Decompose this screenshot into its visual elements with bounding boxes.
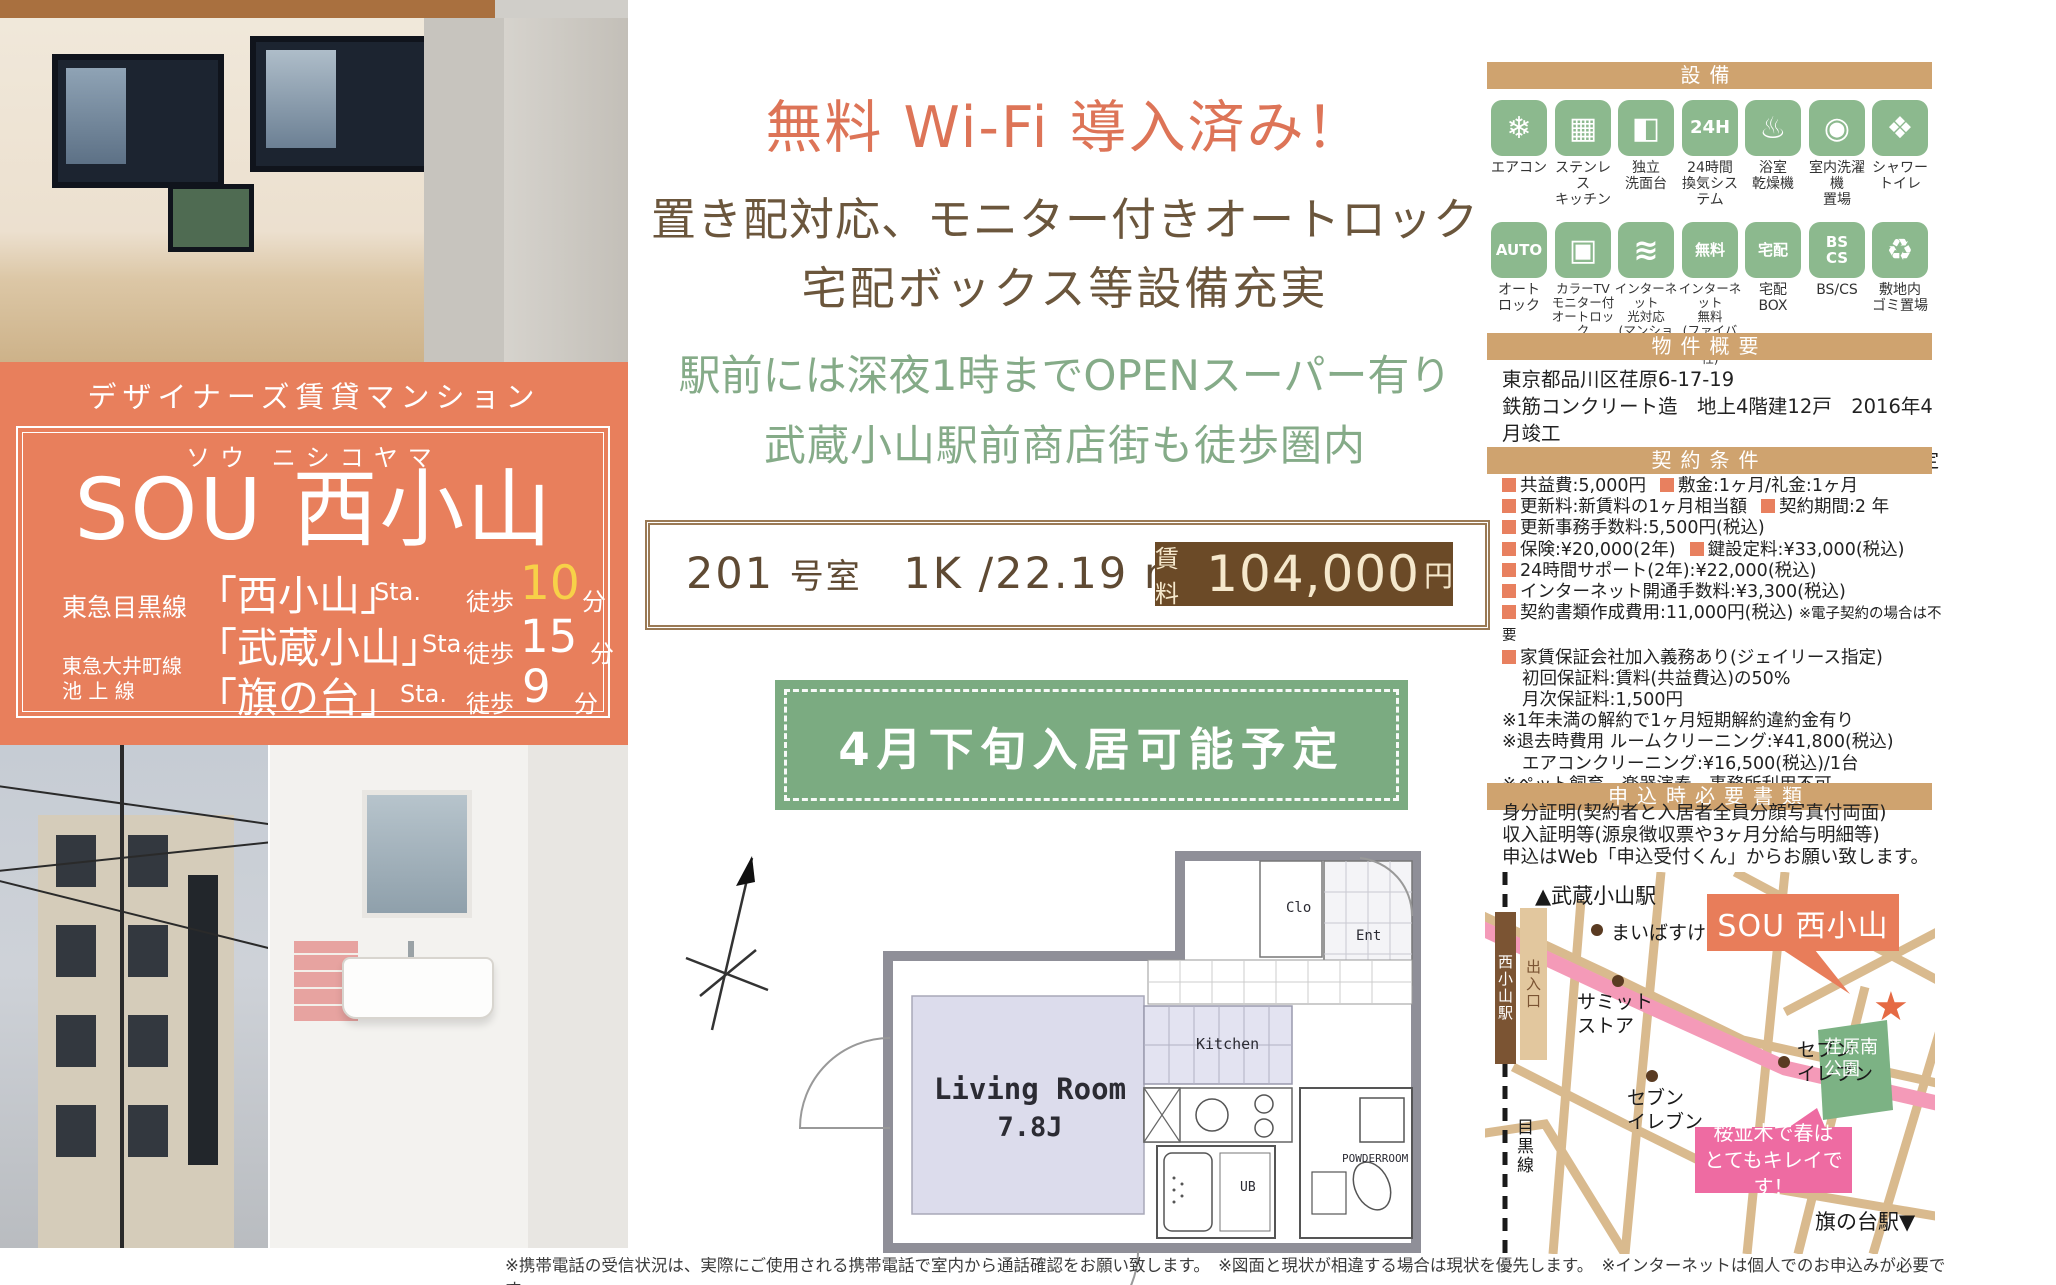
summit-store-label: サミット ストア	[1577, 990, 1653, 1038]
access-station-3: 「旗の台」	[196, 664, 401, 724]
closet-label: Clo	[1286, 900, 1311, 916]
terms-row: 月次保証料:1,500円	[1502, 690, 1942, 711]
property-name-panel: デザイナーズ賃貸マンション ソウ ニシコヤマ SOU 西小山 東急目黒線 「西小…	[0, 362, 628, 745]
internet-fiber-icon: ≋	[1618, 222, 1674, 278]
terms-row: 契約書類作成費用:11,000円(税込) ※電子契約の場合は不要	[1502, 603, 1942, 647]
property-map-callout: SOU 西小山	[1707, 894, 1899, 951]
compass-icon	[686, 858, 768, 1030]
meguro-line-label: 目黒線	[1511, 1118, 1536, 1175]
access-walk-3: 徒歩	[466, 684, 514, 719]
bullet-icon	[1660, 478, 1674, 492]
bullet-icon	[1502, 520, 1516, 534]
access-line-1: 東急目黒線	[62, 588, 187, 624]
headline-supermarket: 駅前には深夜1時までOPENスーパー有り	[620, 342, 1510, 403]
documents-web: 申込はWeb「申込受付くん」からお願い致します。	[1502, 847, 1942, 869]
equipment-item-aircon: ❄ エアコン	[1487, 100, 1551, 176]
access-minutes-2: 15	[520, 610, 577, 663]
hatanodai-station-label: 旗の台駅▼	[1815, 1206, 1915, 1236]
photo-room-interior	[0, 18, 628, 362]
powder-room-label: POWDERROOM	[1342, 1152, 1408, 1165]
concrete-wall	[504, 18, 628, 362]
bullet-icon	[1502, 650, 1516, 664]
equipment-item-indoor-laundry: ◉ 室内洗濯機 置場	[1805, 100, 1869, 208]
compass-north-arrow	[736, 856, 755, 886]
living-room-label: Living Room	[930, 1072, 1130, 1106]
access-unit-1: 分	[582, 582, 606, 617]
move-in-banner: 4月下旬入居可能予定	[775, 680, 1408, 810]
concrete-pillar	[424, 18, 504, 362]
sakura-note: 桜並木で春は とてもキレイです！	[1695, 1127, 1852, 1193]
powder-sink	[1360, 1098, 1404, 1142]
bath-dryer-icon: ♨	[1745, 100, 1801, 156]
property-name: SOU 西小山	[0, 456, 628, 566]
rent-value: 104,000	[1206, 545, 1420, 603]
overview-address: 東京都品川区荏原6-17-19	[1502, 366, 1942, 393]
access-map: 西小山駅 出入口 ▲武蔵小山駅 まいばすけっと サミット ストア セブン イレブ…	[1485, 872, 1935, 1254]
door-arc-left	[800, 1038, 890, 1128]
equipment-item-ventilation: 24H 24時間 換気システム	[1678, 100, 1742, 208]
rent-box: 賃料 104,000 円	[1155, 542, 1453, 606]
access-line-3: 東急大井町線 池 上 線	[62, 654, 182, 704]
station-exit-bar: 出入口	[1520, 908, 1547, 1060]
headline-free-wifi: 無料 Wi-Fi 導入済み！	[640, 82, 1490, 164]
documents-id: 身分証明(契約者と入居者全員分顔写真付両面)	[1502, 803, 1942, 825]
nishikoyama-station-bar: 西小山駅	[1495, 912, 1516, 1064]
musashikoyama-station-label: ▲武蔵小山駅	[1535, 880, 1656, 910]
ub-label: UB	[1240, 1180, 1256, 1195]
autolock-key-icon: AUTO	[1491, 222, 1547, 278]
living-size-label: 7.8J	[930, 1112, 1130, 1143]
access-sta-2: Sta.	[422, 630, 469, 658]
access-minutes-1: 10	[520, 556, 580, 611]
power-pole	[120, 745, 124, 1248]
terms-row: 共益費:5,000円敷金:1ヶ月/礼金:1ヶ月	[1502, 476, 1942, 497]
room-number: 201	[686, 549, 774, 599]
headline-shopping-street: 武蔵小山駅前商店街も徒歩圏内	[620, 412, 1510, 473]
access-walk-1: 徒歩	[466, 582, 514, 617]
mirror-shape	[362, 790, 472, 918]
property-badge: デザイナーズ賃貸マンション	[0, 374, 628, 416]
documents-income: 収入証明等(源泉徴収票や3ヶ月分給与明細等)	[1502, 825, 1942, 847]
bullet-icon	[1502, 499, 1516, 513]
washing-machine-icon: ◉	[1809, 100, 1865, 156]
bath-wall	[528, 745, 628, 1248]
garbage-area-icon: ♻	[1872, 222, 1928, 278]
bullet-icon	[1690, 542, 1704, 556]
top-photo-edge	[495, 0, 628, 18]
window-shape	[168, 184, 254, 252]
access-sta-3: Sta.	[400, 680, 447, 708]
washbasin-shape	[342, 957, 494, 1019]
rental-flyer: デザイナーズ賃貸マンション ソウ ニシコヤマ SOU 西小山 東急目黒線 「西小…	[0, 0, 2056, 1285]
equipment-item-bath-dryer: ♨ 浴室 乾燥機	[1741, 100, 1805, 192]
terms-text: 共益費:5,000円敷金:1ヶ月/礼金:1ヶ月 更新料:新賃料の1ヶ月相当額契約…	[1502, 476, 1942, 796]
move-in-text: 4月下旬入居可能予定	[775, 680, 1408, 810]
headline-feature-2: 宅配ボックス等設備充実	[620, 252, 1510, 317]
bullet-icon	[1502, 478, 1516, 492]
room-number-suffix: 号室	[790, 557, 862, 597]
room-info-frame: 201 号室 1K /22.19 m² 賃料 104,000 円	[645, 520, 1490, 630]
window-shape	[52, 54, 224, 188]
stainless-kitchen-icon: ▦	[1555, 100, 1611, 156]
access-walk-2: 徒歩	[466, 634, 514, 669]
bullet-icon	[1761, 499, 1775, 513]
washstand-icon: ◧	[1618, 100, 1674, 156]
overview-structure: 鉄筋コンクリート造 地上4階建12戸 2016年4月竣工	[1502, 393, 1942, 447]
access-minutes-3: 9	[522, 660, 551, 713]
equipment-item-kitchen: ▦ ステンレス キッチン	[1551, 100, 1615, 208]
bs-cs-icon: BS CS	[1809, 222, 1865, 278]
equipment-item-washstand: ◧ 独立 洗面台	[1614, 100, 1678, 192]
property-star-icon: ★	[1873, 984, 1909, 1030]
seven-eleven-label-2: セブン イレブン	[1627, 1086, 1703, 1134]
access-unit-3: 分	[574, 684, 598, 719]
nishikoyama-station-label: 西小山駅	[1495, 954, 1516, 1022]
terms-row: 初回保証料:賃料(共益費込)の50%	[1502, 669, 1942, 690]
entry-label: Ent	[1356, 928, 1381, 944]
footer-disclaimer: ※携帯電話の受信状況は、実際にご使用される携帯電話で室内から通話確認をお願い致し…	[505, 1252, 1955, 1285]
equipment-item-garbage: ♻ 敷地内 ゴミ置場	[1868, 222, 1932, 314]
photo-washbasin	[270, 745, 628, 1248]
rent-label: 賃料	[1155, 539, 1190, 609]
kitchen-label: Kitchen	[1196, 1035, 1259, 1053]
rent-unit: 円	[1424, 553, 1453, 595]
terms-row: 更新料:新賃料の1ヶ月相当額契約期間:2 年	[1502, 497, 1942, 518]
section-title-equipment: 設備	[1487, 62, 1932, 89]
terms-row: 24時間サポート(2年):¥22,000(税込)	[1502, 561, 1942, 582]
terms-row: 保険:¥20,000(2年)鍵設定料:¥33,000(税込)	[1502, 540, 1942, 561]
access-station-1: 「西小山」	[196, 562, 401, 622]
headline-feature-1: 置き配対応、モニター付きオートロック	[620, 183, 1510, 248]
delivery-box-icon: 宅配	[1745, 222, 1801, 278]
bullet-icon	[1502, 542, 1516, 556]
terms-row: 家賃保証会社加入義務あり(ジェイリース指定)	[1502, 648, 1942, 669]
section-title-overview: 物件概要	[1487, 333, 1932, 360]
equipment-item-tv-monitor: ▣ カラーTV モニター付 オートロック	[1551, 222, 1615, 338]
bullet-icon	[1502, 584, 1516, 598]
photo-building-exterior	[0, 745, 268, 1248]
terms-row: インターネット開通手数料:¥3,300(税込)	[1502, 582, 1942, 603]
internet-free-icon: 無料	[1682, 222, 1738, 278]
bullet-icon	[1502, 605, 1516, 619]
terms-row: エアコンクリーニング:¥16,500(税込)/1台	[1502, 754, 1942, 775]
ventilation-24h-icon: 24H	[1682, 100, 1738, 156]
access-unit-2: 分	[590, 634, 614, 669]
tv-monitor-icon: ▣	[1555, 222, 1611, 278]
documents-text: 身分証明(契約者と入居者全員分顔写真付両面) 収入証明等(源泉徴収票や3ヶ月分給…	[1502, 803, 1942, 868]
park-label: 荏原南 公園	[1824, 1037, 1878, 1081]
shower-toilet-icon: ❖	[1872, 100, 1928, 156]
window-shape	[250, 36, 434, 172]
access-sta-1: Sta.	[374, 578, 421, 606]
equipment-item-bscs: BS CS BS/CS	[1805, 222, 1869, 298]
equipment-item-delivery-box: 宅配 宅配 BOX	[1741, 222, 1805, 314]
station-exit-label: 出入口	[1523, 959, 1544, 1010]
bathtub-shape	[1164, 1153, 1212, 1231]
terms-row: ※1年未満の解約で1ヶ月短期解約違約金有り	[1502, 711, 1942, 732]
building-shape	[38, 815, 234, 1248]
terms-row: 更新事務手数料:5,500円(税込)	[1502, 518, 1942, 539]
room-info: 201 号室 1K /22.19 m²	[686, 549, 1207, 599]
terms-row: ※退去時費用 ルームクリーニング:¥41,800(税込)	[1502, 732, 1942, 753]
top-accent-strip	[0, 0, 495, 18]
equipment-item-shower-toilet: ❖ シャワー トイレ	[1868, 100, 1932, 192]
aircon-icon: ❄	[1491, 100, 1547, 156]
floorplan-drawing	[660, 838, 1440, 1285]
bullet-icon	[1502, 563, 1516, 577]
section-title-terms: 契約条件	[1487, 447, 1932, 474]
equipment-item-autolock: AUTO オート ロック	[1487, 222, 1551, 314]
